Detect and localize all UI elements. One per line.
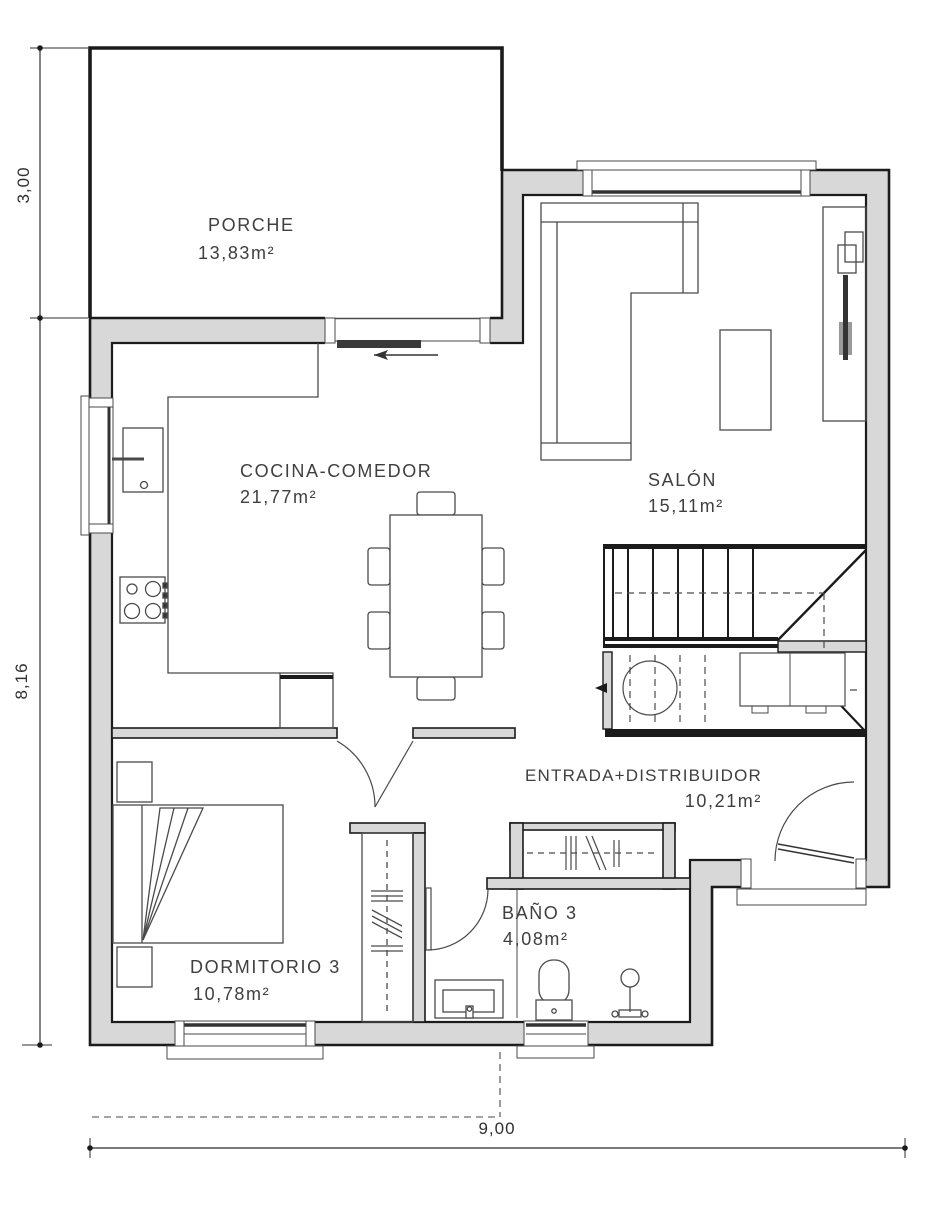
svg-text:ENTRADA+DISTRIBUIDOR: ENTRADA+DISTRIBUIDOR bbox=[525, 766, 762, 785]
room-label-porche: PORCHE 13,83m² bbox=[198, 215, 295, 263]
porch-outline bbox=[90, 48, 502, 318]
dim-9-00: 9,00 bbox=[478, 1119, 515, 1138]
chair-icon bbox=[368, 548, 390, 585]
chair-icon bbox=[482, 548, 504, 585]
svg-text:15,11m²: 15,11m² bbox=[648, 496, 724, 516]
dim-8-16: 8,16 bbox=[12, 662, 31, 699]
svg-text:PORCHE: PORCHE bbox=[208, 215, 295, 235]
chair-icon bbox=[417, 492, 455, 515]
kitchen-window-icon bbox=[81, 396, 113, 535]
toilet-icon bbox=[536, 960, 572, 1020]
bathroom-window-icon bbox=[517, 1021, 594, 1058]
svg-text:BAÑO 3: BAÑO 3 bbox=[502, 902, 578, 923]
salon-window-icon bbox=[577, 161, 816, 196]
dining-table-icon bbox=[390, 515, 482, 677]
dim-3-00: 3,00 bbox=[14, 166, 33, 203]
bed-icon bbox=[113, 805, 283, 943]
floor-plan: PORCHE 13,83m² COCINA-COMEDOR 21,77m² SA… bbox=[0, 0, 926, 1205]
chair-icon bbox=[368, 612, 390, 649]
chair-icon bbox=[482, 612, 504, 649]
svg-text:13,83m²: 13,83m² bbox=[198, 243, 275, 263]
svg-text:10,21m²: 10,21m² bbox=[685, 791, 762, 811]
bedroom-window-icon bbox=[167, 1021, 323, 1059]
floor-plan-drawing: PORCHE 13,83m² COCINA-COMEDOR 21,77m² SA… bbox=[0, 0, 926, 1205]
chair-icon bbox=[417, 677, 455, 700]
svg-text:COCINA-COMEDOR: COCINA-COMEDOR bbox=[240, 461, 432, 481]
svg-text:4,08m²: 4,08m² bbox=[503, 929, 569, 949]
svg-text:DORMITORIO 3: DORMITORIO 3 bbox=[190, 957, 341, 977]
svg-text:SALÓN: SALÓN bbox=[648, 469, 717, 490]
svg-text:10,78m²: 10,78m² bbox=[193, 984, 270, 1004]
svg-text:21,77m²: 21,77m² bbox=[240, 487, 317, 507]
